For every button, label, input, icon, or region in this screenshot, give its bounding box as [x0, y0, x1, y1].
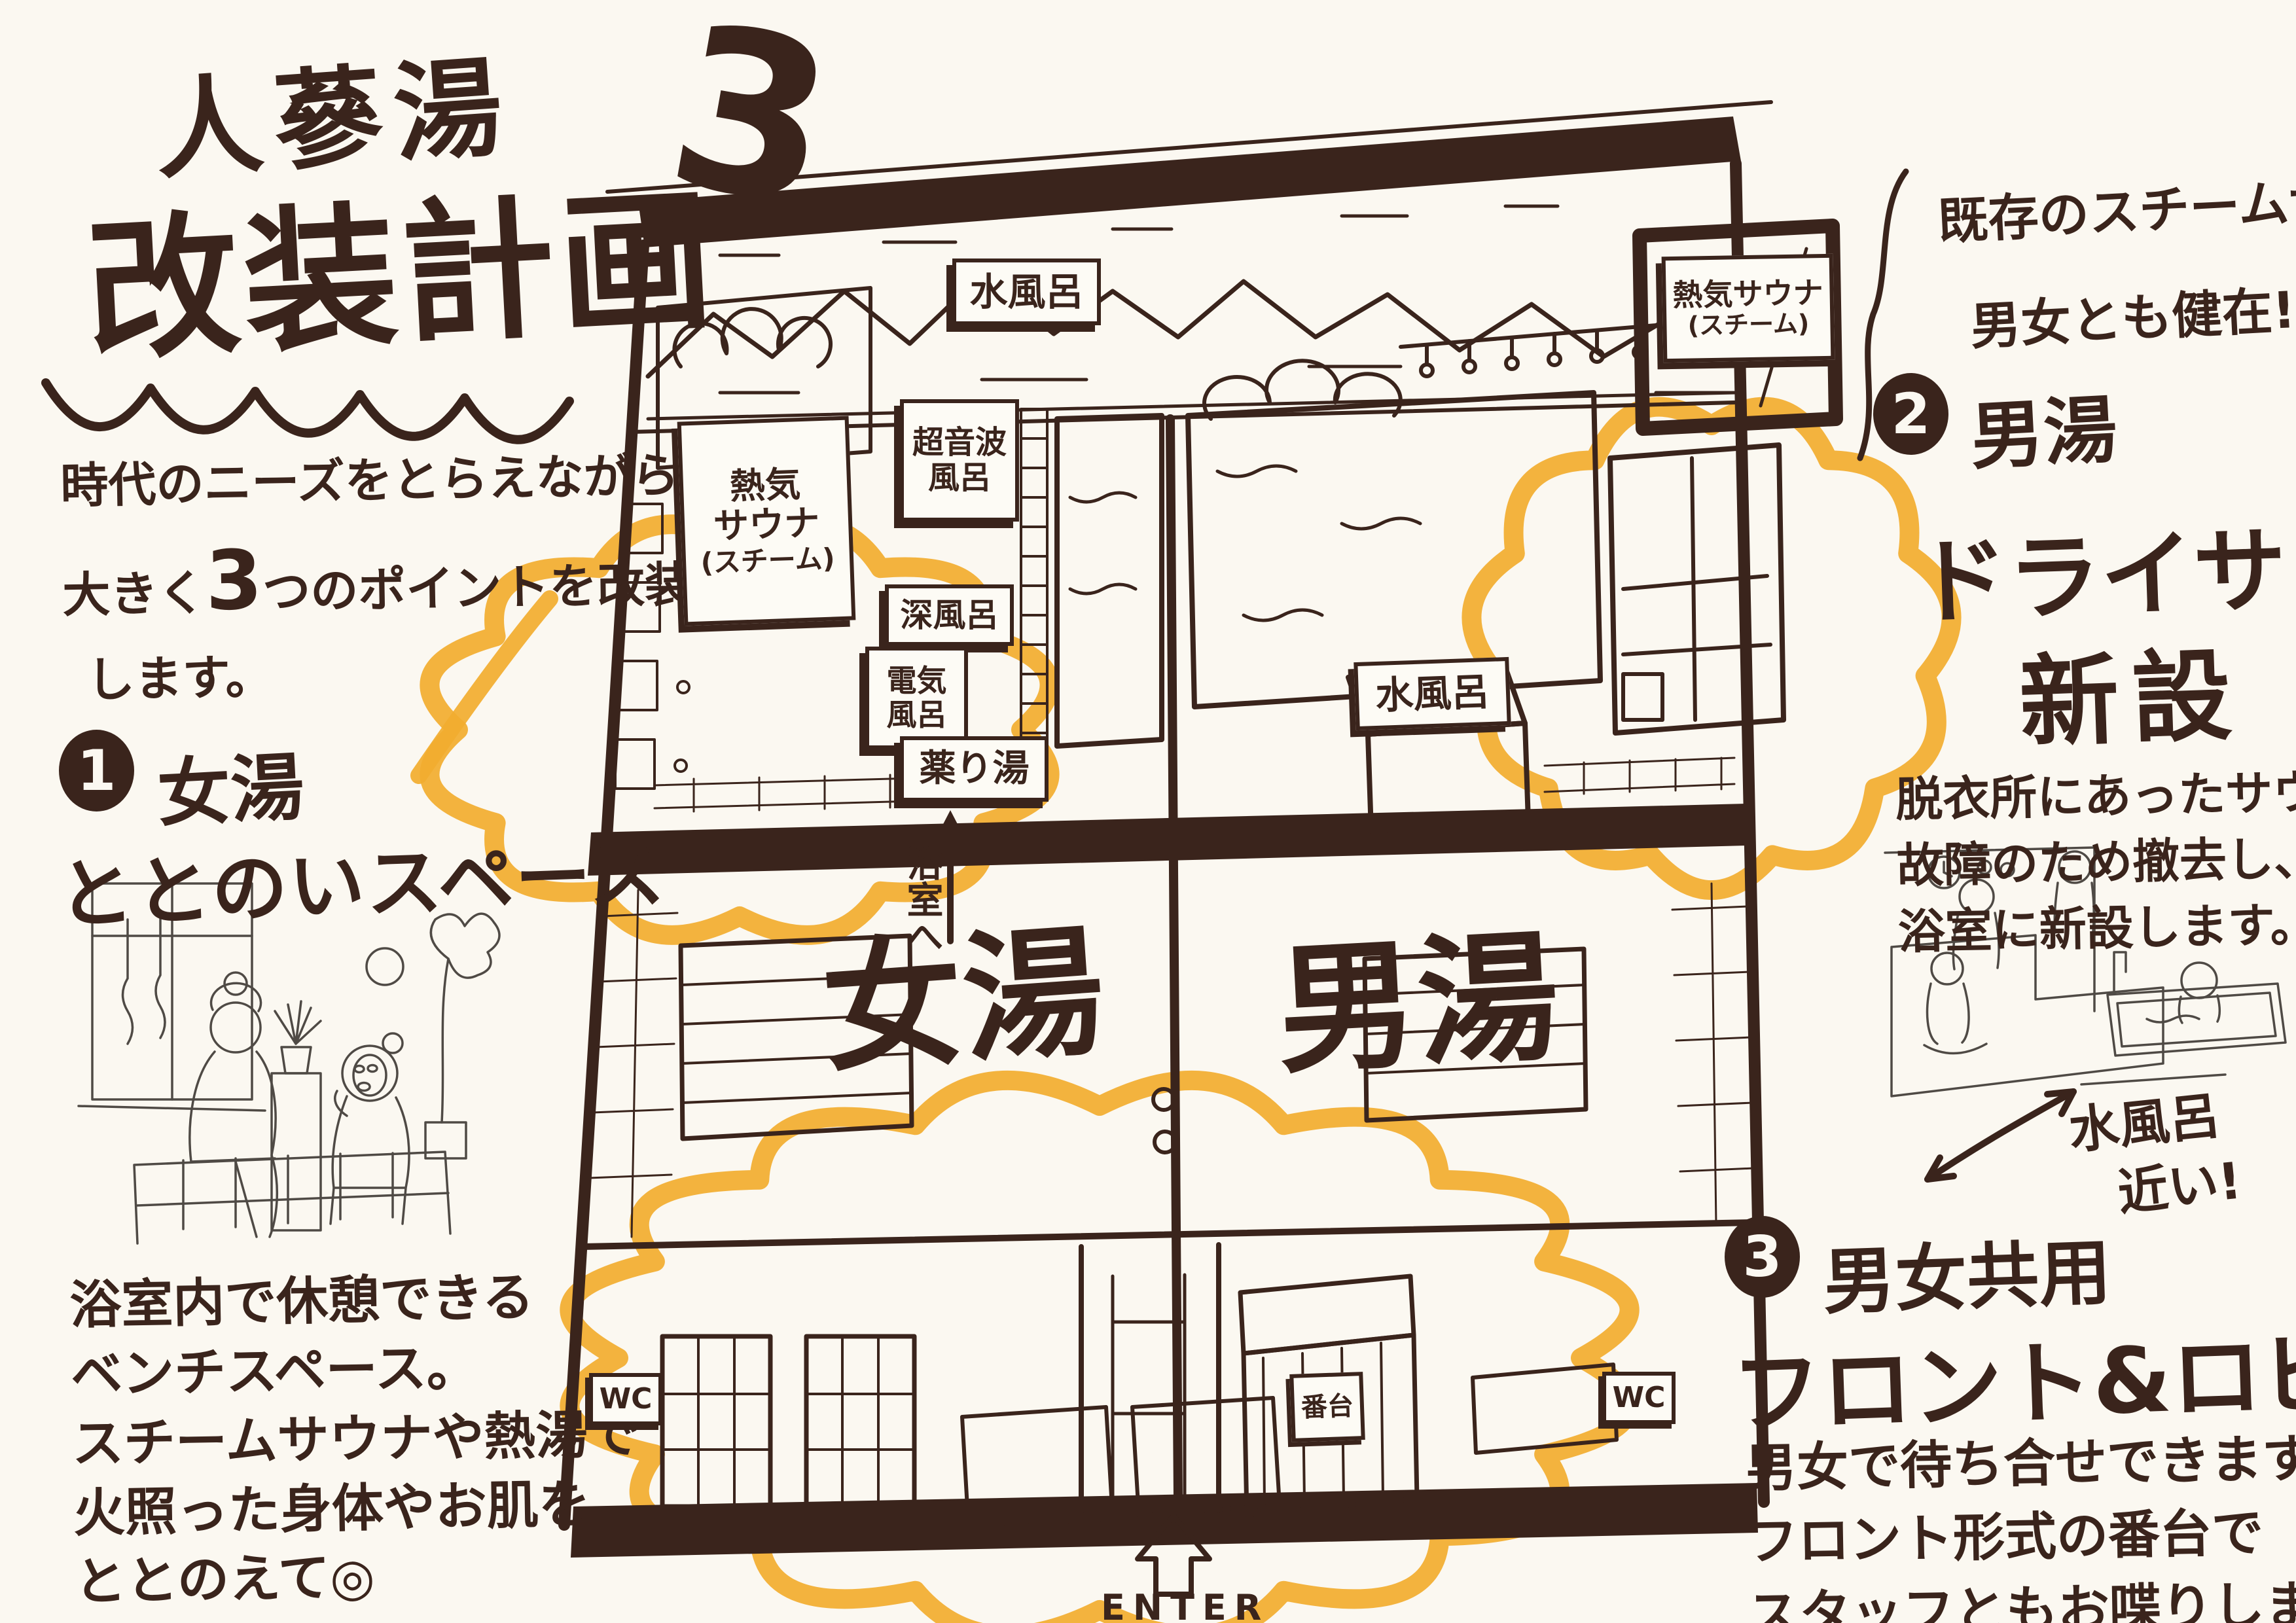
point1-number-badge: 1: [59, 730, 134, 811]
sign-text: 深風呂: [901, 597, 999, 633]
title-wave-underline: [46, 383, 569, 440]
sign-text: 電気: [887, 664, 947, 698]
point2-category: 男湯: [1967, 370, 2119, 484]
mens-main-tub: [1188, 393, 1600, 707]
sign-text: 風呂: [887, 698, 947, 732]
sign-medicine-bath: 薬り湯: [900, 736, 1049, 802]
sign-text: 熱気サウナ: [1672, 276, 1823, 313]
intro-line-3: します。: [63, 633, 731, 717]
sign-cold-bath-left: 水風呂: [952, 259, 1101, 325]
intro-text: 時代のニーズをとらえながら、 大きく3つのポイントを改装 します。: [60, 439, 731, 717]
point1-category: 女湯: [154, 728, 306, 842]
locker-wall-right: [1672, 883, 1754, 1224]
sign-text: 水風呂: [969, 271, 1083, 313]
water-ripples: [1070, 493, 1136, 594]
sign-text: 風呂: [928, 461, 991, 496]
point3-desc-line: 男女で待ち合せできます◎: [1744, 1419, 2296, 1505]
water-ripples: [1217, 466, 1420, 620]
sign-text: 番台: [1300, 1391, 1354, 1423]
sign-text: 熱気: [729, 465, 801, 507]
sign-cold-bath-right: 水風呂: [1354, 657, 1511, 730]
to-bathroom-label: 浴室へ: [895, 844, 948, 954]
point1-heading: ととのいスペース: [56, 813, 667, 944]
sign-steam-sauna-left: 熱気 サウナ (スチーム): [677, 416, 856, 626]
mural-shading: [648, 206, 1734, 419]
sign-deep-bath: 深風呂: [885, 584, 1014, 646]
mountain-mural: [648, 275, 1733, 376]
point1-desc-line: 浴室内で休憩できる: [69, 1261, 637, 1340]
point1-desc-line: ととのえて◎: [74, 1539, 642, 1618]
sign-text: サウナ: [713, 504, 820, 547]
entrance-doorway: [1081, 1245, 1219, 1512]
sign-text: WC: [1613, 1382, 1666, 1414]
new-dry-sauna-room: [1610, 445, 1784, 733]
cold-bath-near-arrow: [1928, 1092, 2073, 1179]
sign-bandai: 番台: [1289, 1372, 1365, 1442]
deep-bath-tub: [1057, 416, 1162, 746]
sign-steam-sauna-right: 熱気サウナ (スチーム): [1662, 254, 1835, 363]
point1-desc-line: 火照った身体やお肌を: [73, 1469, 641, 1548]
sign-text: 薬り湯: [920, 749, 1030, 790]
sign-text: WC: [600, 1383, 653, 1415]
bath-floor-band: [588, 804, 1748, 876]
shoji-doors: [662, 1336, 914, 1507]
locker-floor-line: [581, 1222, 1755, 1247]
sign-electric-bath: 電気 風呂: [865, 647, 968, 749]
point2-desc-line: 脱衣所にあったサウナは: [1895, 758, 2296, 833]
sign-text: 水風呂: [1374, 670, 1490, 717]
zone-label-female: 女湯: [815, 877, 1110, 1099]
sign-wc-left: WC: [589, 1373, 662, 1425]
point2-desc-line: 浴室に新設します。: [1897, 890, 2296, 965]
sign-text: (スチーム): [700, 543, 836, 578]
poster-title: 改装計画: [80, 134, 722, 390]
center-divider-wall: [1170, 419, 1178, 1499]
entrance-floor-band: [571, 1483, 1758, 1558]
sign-ultrasonic-bath: 超音波 風呂: [900, 399, 1019, 522]
tile-grid-right: [1545, 758, 1734, 794]
point3-number-badge: 3: [1725, 1216, 1800, 1298]
sign-text: (スチーム): [1687, 310, 1809, 340]
sign-wc-right: WC: [1602, 1372, 1676, 1424]
point1-desc-line: ベンチスペース。: [70, 1330, 638, 1410]
point3-description: 男女で待ち合せできます◎ フロント形式の番台で スタッフともお喋りしましょう!: [1744, 1419, 2296, 1623]
renovation-plan-poster: 人蔘湯 改装計画 3 時代のニーズをとらえながら、 大きく3つのポイントを改装 …: [0, 0, 2296, 1623]
point2-description: 脱衣所にあったサウナは 故障のため撤去し、 浴室に新設します。: [1895, 758, 2296, 965]
zone-label-male: 男湯: [1271, 883, 1563, 1101]
point1-desc-line: スチームサウナや熱湯で: [71, 1400, 639, 1479]
intro-line-2: 大きく3つのポイントを改装: [61, 511, 729, 645]
intro-line-1: 時代のニーズをとらえながら、: [60, 439, 728, 522]
point1-description: 浴室内で休憩できる ベンチスペース。 スチームサウナや熱湯で 火照った身体やお肌…: [69, 1261, 642, 1617]
intro-big-3: 3: [205, 533, 264, 628]
point2-number-badge: 2: [1873, 373, 1948, 455]
point2-heading-line2: 新設: [2017, 615, 2246, 766]
sign-text: 超音波: [912, 425, 1007, 461]
enter-label: ENTER: [1101, 1587, 1269, 1623]
cold-bath-near-line2: 近い!: [2114, 1140, 2245, 1225]
point3-desc-line: フロント形式の番台で: [1746, 1492, 2296, 1578]
point2-desc-line: 故障のため撤去し、: [1896, 824, 2296, 899]
